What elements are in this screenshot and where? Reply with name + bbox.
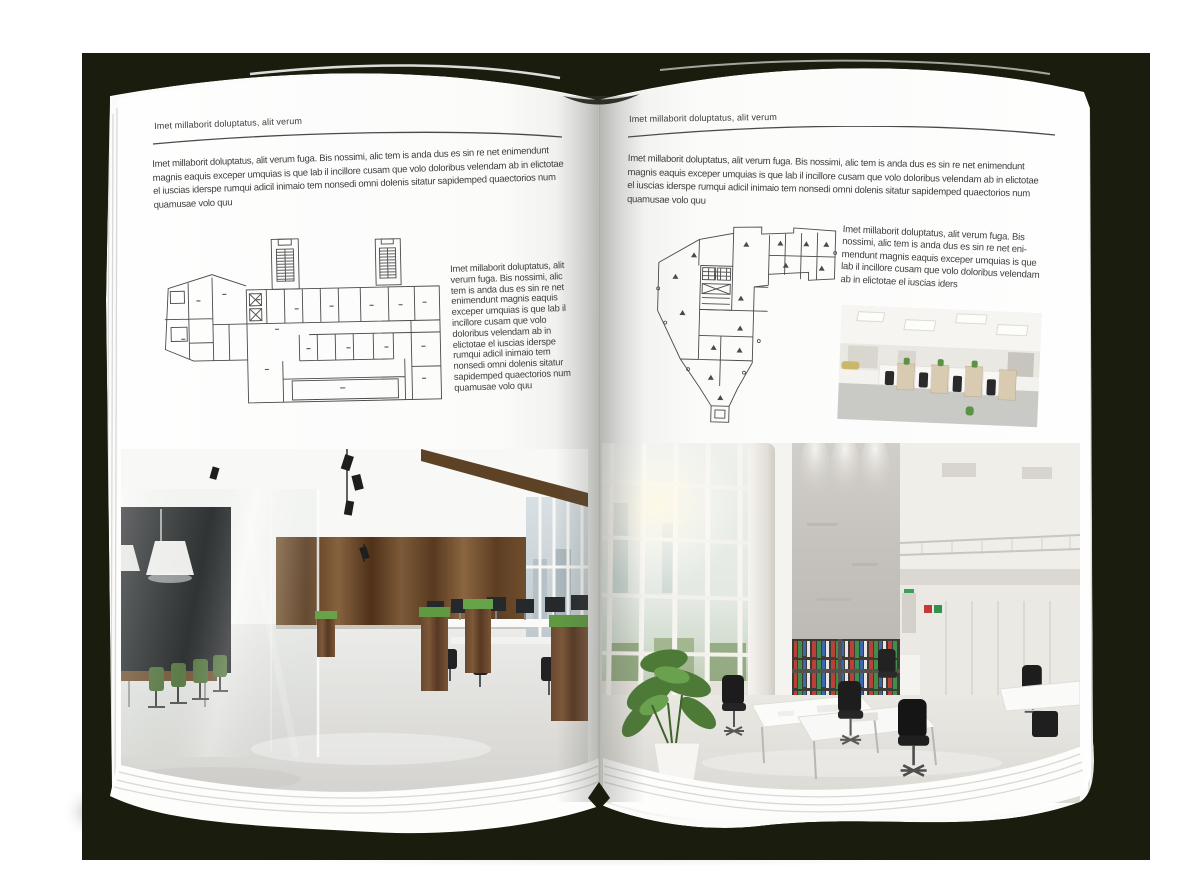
right-page-intro: Imet millaborit doluptatus, alit verum f…	[627, 152, 1048, 215]
lounge-sofa	[841, 361, 859, 370]
right-page-header: Imet millaborit doluptatus, alit verum	[629, 112, 777, 124]
right-header-rule	[627, 126, 1057, 144]
office-photo-right	[602, 443, 1080, 803]
office-photo-left	[121, 449, 588, 794]
right-side-text: Imet millaborit doluptatus, alit verum f…	[840, 224, 1047, 295]
concrete-wall	[792, 443, 900, 639]
magazine-mockup-scene: Imet millaborit doluptatus, alit verum I…	[0, 0, 1200, 891]
mezzanine-balcony	[900, 443, 1080, 585]
floor-plan-left	[147, 226, 453, 430]
office-photo-small	[837, 305, 1042, 427]
white-cabinets	[920, 601, 1080, 697]
left-side-text: Imet millaborit doluptatus, alit verum f…	[450, 260, 575, 394]
floor-plan-right	[639, 218, 840, 427]
plan-annotation-marks	[180, 290, 428, 391]
